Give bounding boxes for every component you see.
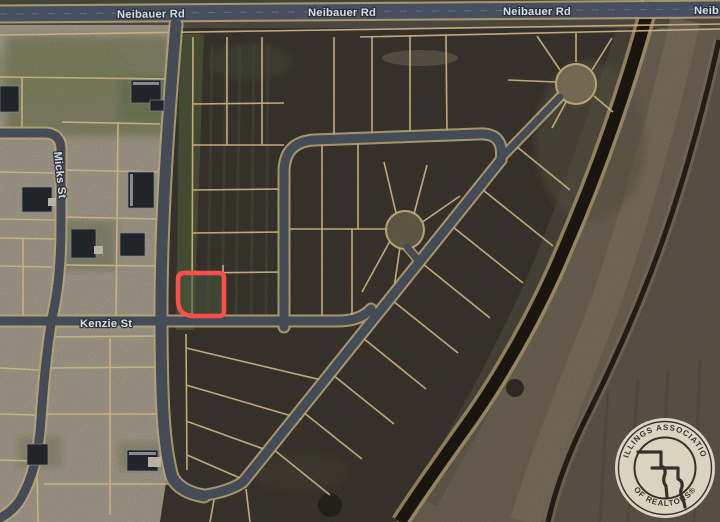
photo-grain-overlay <box>0 0 720 522</box>
satellite-map-image: Neibauer Rd Neibauer Rd Neibauer Rd Neib… <box>0 0 720 522</box>
plat-map-svg: Neibauer Rd Neibauer Rd Neibauer Rd Neib… <box>0 0 720 522</box>
